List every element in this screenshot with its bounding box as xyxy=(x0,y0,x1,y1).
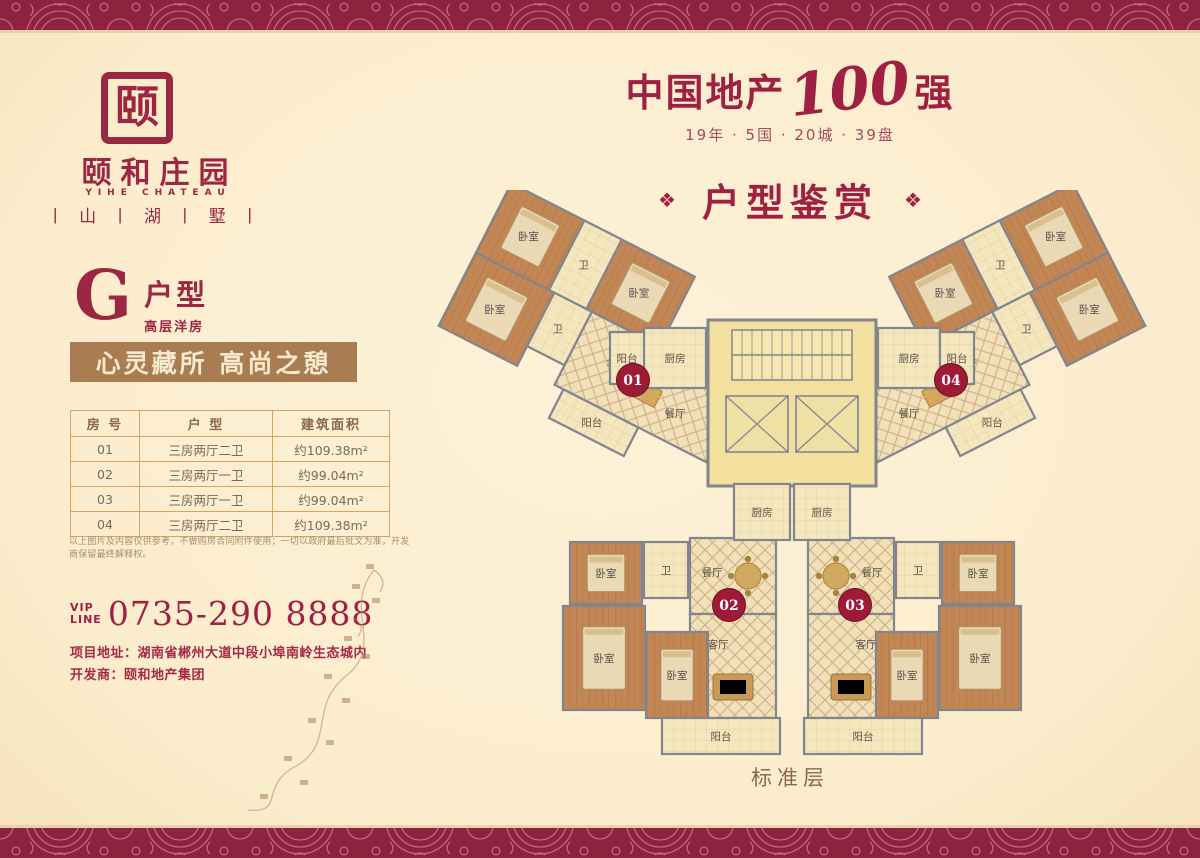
room-label-bedroom: 卧室 xyxy=(518,230,539,243)
room-label-bedroom: 卧室 xyxy=(1045,230,1066,243)
poster: 颐 颐和庄园 YIHE CHATEAU 丨 山 丨 湖 丨 墅 丨 G 户型 高… xyxy=(0,0,1200,858)
headline-prefix: 中国地产 xyxy=(625,70,785,115)
room-label-kitchen: 厨房 xyxy=(752,506,773,519)
unit-type-letter: G xyxy=(74,266,132,327)
headline-subtitle: 19年 · 5国 · 20城 · 39盘 xyxy=(620,124,960,145)
brand-name-en: YIHE CHATEAU xyxy=(40,188,270,198)
core-block xyxy=(708,320,876,486)
room-label-dining: 餐厅 xyxy=(862,566,883,579)
room-label-balcony: 阳台 xyxy=(617,352,638,365)
room-label-dining: 餐厅 xyxy=(702,566,723,579)
spec-cell: 三房两厅二卫 xyxy=(140,512,273,537)
room-label-bath: 卫 xyxy=(913,565,924,577)
floor-label: 标准层 xyxy=(690,762,890,792)
pillow-icon xyxy=(589,556,622,562)
room-label-bedroom: 卧室 xyxy=(935,286,956,299)
room-label-bedroom: 卧室 xyxy=(1079,303,1100,316)
unit-02-block: 卧室卫餐厅客厅卧室卧室阳台厨房 xyxy=(563,484,790,754)
unit-badge-number: 02 xyxy=(719,598,738,614)
chair-icon xyxy=(833,556,839,562)
room-label-balcony: 阳台 xyxy=(711,730,732,743)
unit-spec-table: 房 号 户 型 建筑面积 01三房两厅二卫约109.38m²02三房两厅一卫约9… xyxy=(70,410,390,537)
wave-pattern-icon xyxy=(0,828,1200,858)
spec-cell: 约99.04m² xyxy=(273,487,390,512)
spec-row: 03三房两厅一卫约99.04m² xyxy=(71,487,390,512)
spec-cell: 02 xyxy=(71,462,140,487)
ornamental-border-top xyxy=(0,0,1200,33)
spec-cell: 约109.38m² xyxy=(273,437,390,462)
brand-subname: 丨 山 丨 湖 丨 墅 丨 xyxy=(40,202,270,227)
unit-03-block: 卧室卫餐厅客厅卧室卧室阳台厨房 xyxy=(794,484,1021,754)
room-label-bedroom: 卧室 xyxy=(628,286,649,299)
unit-badge-number: 04 xyxy=(941,373,961,389)
chair-icon xyxy=(745,590,751,596)
spec-header-type: 户 型 xyxy=(140,411,273,437)
pillow-icon xyxy=(961,556,994,562)
room-label-bedroom: 卧室 xyxy=(968,567,989,580)
spec-cell: 04 xyxy=(71,512,140,537)
developer-value: 颐和地产集团 xyxy=(124,668,205,683)
spec-cell: 三房两厅一卫 xyxy=(140,462,273,487)
room-label-bath: 卫 xyxy=(661,565,672,577)
chair-icon xyxy=(745,556,751,562)
spec-cell: 01 xyxy=(71,437,140,462)
unit-badge: 01 xyxy=(617,364,650,397)
room-label-balcony: 阳台 xyxy=(947,352,968,365)
vip-label-bottom: LINE xyxy=(70,614,102,626)
spec-row: 02三房两厅一卫约99.04m² xyxy=(71,462,390,487)
room-label-living: 客厅 xyxy=(856,638,877,651)
room-label-dining: 餐厅 xyxy=(665,407,686,420)
ornamental-border-bottom xyxy=(0,825,1200,858)
room-label-kitchen: 厨房 xyxy=(899,352,920,365)
room-label-bedroom: 卧室 xyxy=(596,567,617,580)
pillow-icon xyxy=(585,629,624,635)
chair-icon xyxy=(816,573,822,579)
room-label-balcony: 阳台 xyxy=(581,416,602,429)
room-label-dining: 餐厅 xyxy=(898,407,919,420)
room-label-living: 客厅 xyxy=(708,638,729,651)
headline-suffix: 强 xyxy=(915,70,955,115)
site-plan-sketch-icon xyxy=(224,558,404,813)
room-label-bedroom: 卧室 xyxy=(897,669,918,682)
room-label-bedroom: 卧室 xyxy=(594,652,615,665)
room-label-bath: 卫 xyxy=(995,259,1006,271)
room-label-balcony: 阳台 xyxy=(982,416,1003,429)
unit-type-block: G 户型 高层洋房 xyxy=(74,266,374,335)
spec-cell: 03 xyxy=(71,487,140,512)
slogan-banner: 心灵藏所 高尚之憩 xyxy=(70,342,357,382)
cloud-scroll-pattern-icon xyxy=(0,0,1200,30)
room-label-bath: 卫 xyxy=(552,324,563,336)
pillow-icon xyxy=(961,629,1000,635)
floorplan-svg: 卧室卫卧室卧室卫客厅阳台餐厅卧室卫卧室卧室卫客厅阳台餐厅厨房阳台厨房阳台卧室卫餐… xyxy=(420,190,1170,768)
spec-cell: 约99.04m² xyxy=(273,462,390,487)
vip-label-top: VIP xyxy=(70,602,102,614)
pillow-icon xyxy=(893,651,921,657)
unit-badge: 02 xyxy=(713,589,746,622)
spec-cell: 三房两厅一卫 xyxy=(140,487,273,512)
spec-header-room: 房 号 xyxy=(71,411,140,437)
room-label-bath: 卫 xyxy=(1021,324,1031,336)
unit-badge-number: 01 xyxy=(623,373,642,389)
developer-label: 开发商： xyxy=(70,668,124,683)
vip-line-label: VIP LINE xyxy=(70,602,102,625)
spec-cell: 三房两厅二卫 xyxy=(140,437,273,462)
chair-icon xyxy=(762,573,768,579)
unit-badge: 03 xyxy=(839,589,872,622)
seal-character: 颐 xyxy=(115,86,159,130)
spec-header-row: 房 号 户 型 建筑面积 xyxy=(71,411,390,437)
unit-badge-number: 03 xyxy=(845,598,864,614)
chair-icon xyxy=(850,573,856,579)
dining-table-icon xyxy=(823,563,849,589)
chair-icon xyxy=(728,573,734,579)
developer-line: 开发商：颐和地产集团 xyxy=(70,664,205,683)
room-label-bedroom: 卧室 xyxy=(970,652,991,665)
address-label: 项目地址： xyxy=(70,646,138,661)
spec-row: 01三房两厅二卫约109.38m² xyxy=(71,437,390,462)
headline-top100: 中国地产100强 xyxy=(620,62,960,117)
room-label-bedroom: 卧室 xyxy=(484,303,505,316)
room-label-balcony: 阳台 xyxy=(853,730,874,743)
dining-table-icon xyxy=(735,563,761,589)
pillow-icon xyxy=(663,651,691,657)
room-label-bath: 卫 xyxy=(578,259,589,271)
chair-icon xyxy=(833,590,839,596)
spec-header-area: 建筑面积 xyxy=(273,411,390,437)
headline-number: 100 xyxy=(787,59,913,120)
spec-row: 04三房两厅二卫约109.38m² xyxy=(71,512,390,537)
room-label-kitchen: 厨房 xyxy=(812,506,833,519)
brand-seal-logo-icon: 颐 xyxy=(101,72,173,144)
spec-cell: 约109.38m² xyxy=(273,512,390,537)
unit-badge: 04 xyxy=(935,364,968,397)
room-label-kitchen: 厨房 xyxy=(665,352,686,365)
brand-name-cn: 颐和庄园 xyxy=(40,148,270,192)
disclaimer-text: 以上图片及内容仅供参考，不做购房合同附件使用；一切以政府最后批文为准，开发商保留… xyxy=(69,534,414,560)
room-label-bedroom: 卧室 xyxy=(667,669,688,682)
